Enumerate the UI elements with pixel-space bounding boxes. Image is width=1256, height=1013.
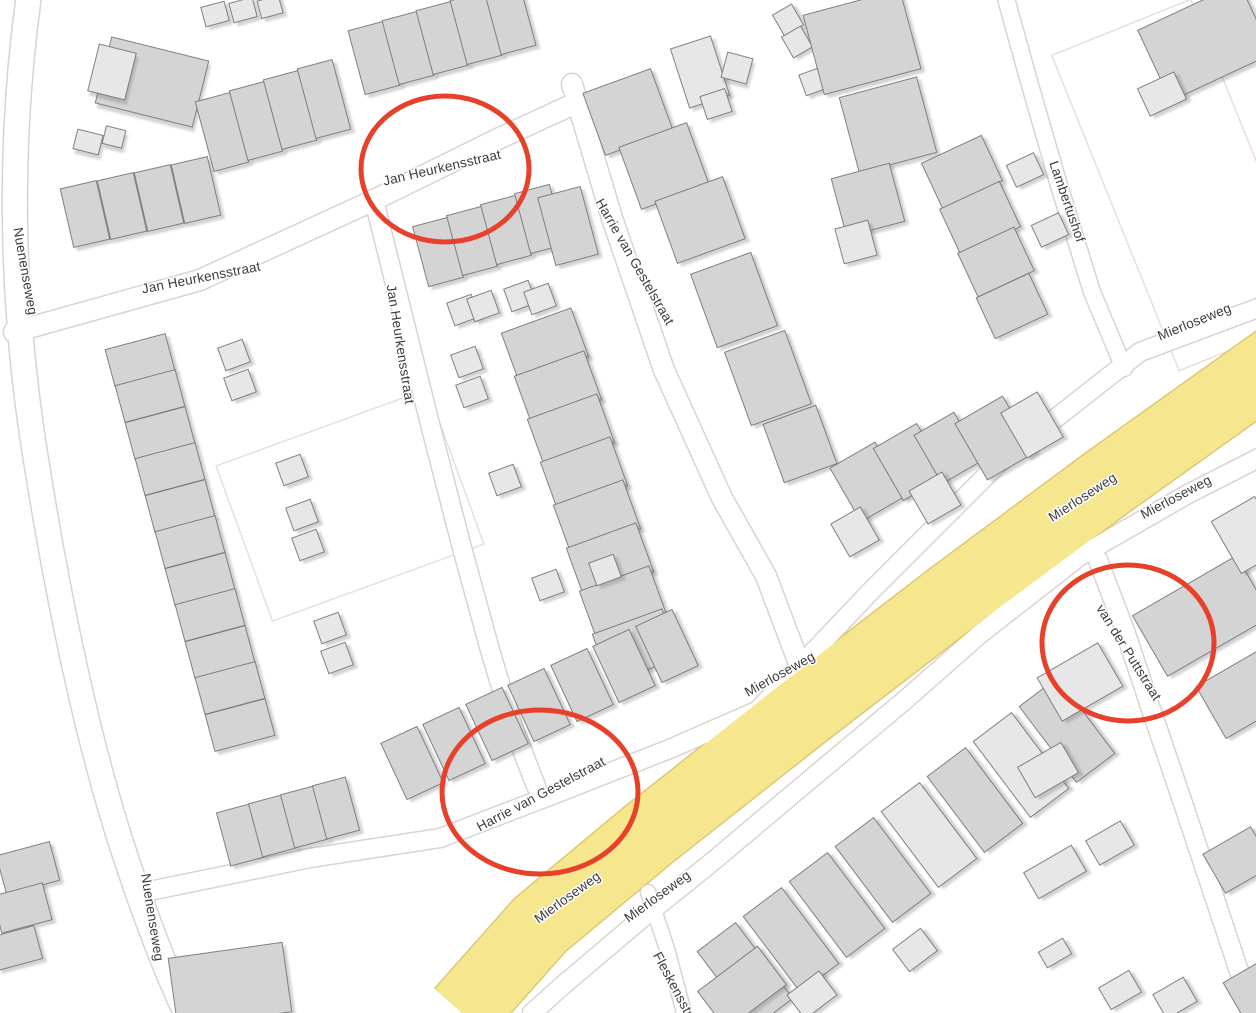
map-canvas[interactable]: Jan HeurkensstraatJan HeurkensstraatNuen… (0, 0, 1256, 1013)
map-viewport: Jan HeurkensstraatJan HeurkensstraatNuen… (0, 0, 1256, 1013)
